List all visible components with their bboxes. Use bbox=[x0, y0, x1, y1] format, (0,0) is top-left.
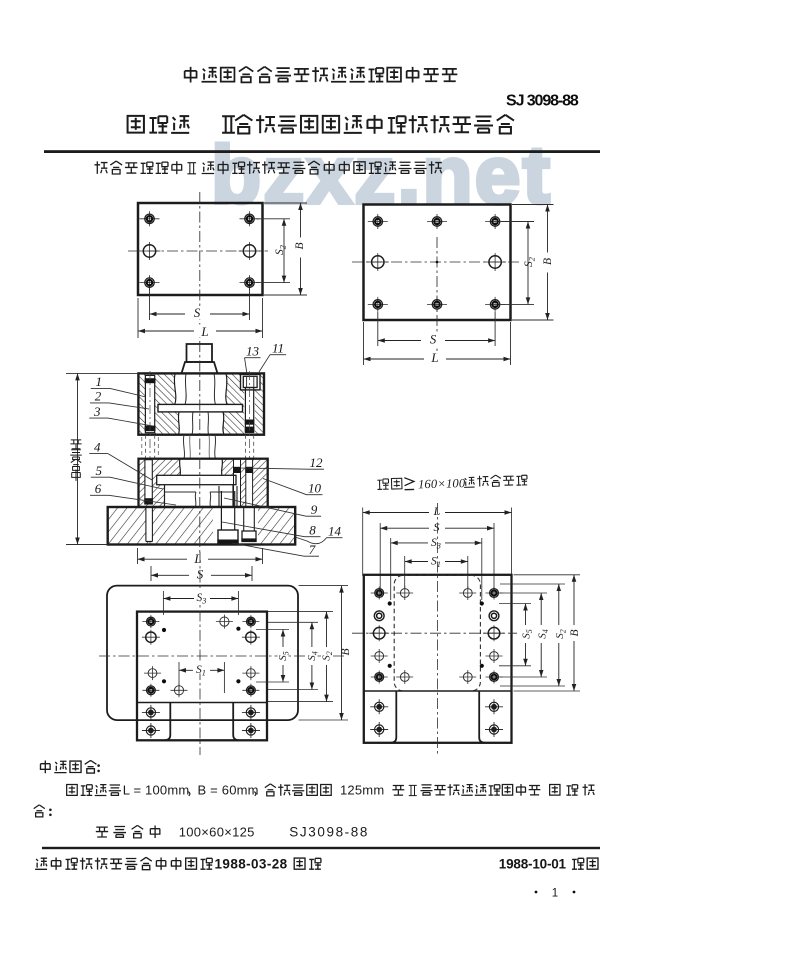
svg-text:4: 4 bbox=[94, 439, 101, 454]
svg-text:SJ 3098-88: SJ 3098-88 bbox=[506, 93, 579, 110]
svg-text:7: 7 bbox=[309, 542, 316, 557]
svg-text:14: 14 bbox=[328, 524, 342, 539]
svg-text:12: 12 bbox=[310, 455, 324, 470]
svg-text:3: 3 bbox=[93, 404, 101, 419]
svg-text:1: 1 bbox=[96, 374, 103, 389]
svg-text:160×100: 160×100 bbox=[418, 476, 466, 491]
svg-text:125mm: 125mm bbox=[340, 782, 384, 797]
svg-text:1988-03-28: 1988-03-28 bbox=[215, 857, 288, 872]
svg-text:13: 13 bbox=[246, 344, 260, 359]
svg-text:L = 100mm: L = 100mm bbox=[123, 782, 190, 797]
svg-text:B: B bbox=[340, 648, 352, 655]
svg-text:1988-10-01: 1988-10-01 bbox=[499, 857, 567, 872]
svg-text:L: L bbox=[200, 324, 208, 339]
svg-text:8: 8 bbox=[309, 523, 316, 538]
svg-text:1: 1 bbox=[552, 888, 558, 900]
svg-text:S: S bbox=[194, 305, 201, 320]
svg-text:B = 60mm: B = 60mm bbox=[198, 782, 259, 797]
svg-text:2: 2 bbox=[95, 389, 102, 404]
svg-text:5: 5 bbox=[96, 463, 103, 478]
svg-text:9: 9 bbox=[311, 502, 318, 517]
svg-text:L: L bbox=[433, 504, 441, 518]
svg-text:100×60×125: 100×60×125 bbox=[179, 825, 255, 840]
svg-text:SJ3098-88: SJ3098-88 bbox=[289, 825, 369, 840]
svg-text:L: L bbox=[430, 350, 438, 365]
svg-text:11: 11 bbox=[272, 341, 284, 356]
svg-text:6: 6 bbox=[95, 481, 102, 496]
svg-text:B: B bbox=[569, 629, 581, 636]
svg-text:B: B bbox=[294, 242, 306, 249]
svg-text:10: 10 bbox=[308, 481, 322, 496]
svg-text:S: S bbox=[430, 332, 437, 347]
svg-text:B: B bbox=[542, 258, 554, 265]
svg-text:S: S bbox=[434, 520, 440, 534]
